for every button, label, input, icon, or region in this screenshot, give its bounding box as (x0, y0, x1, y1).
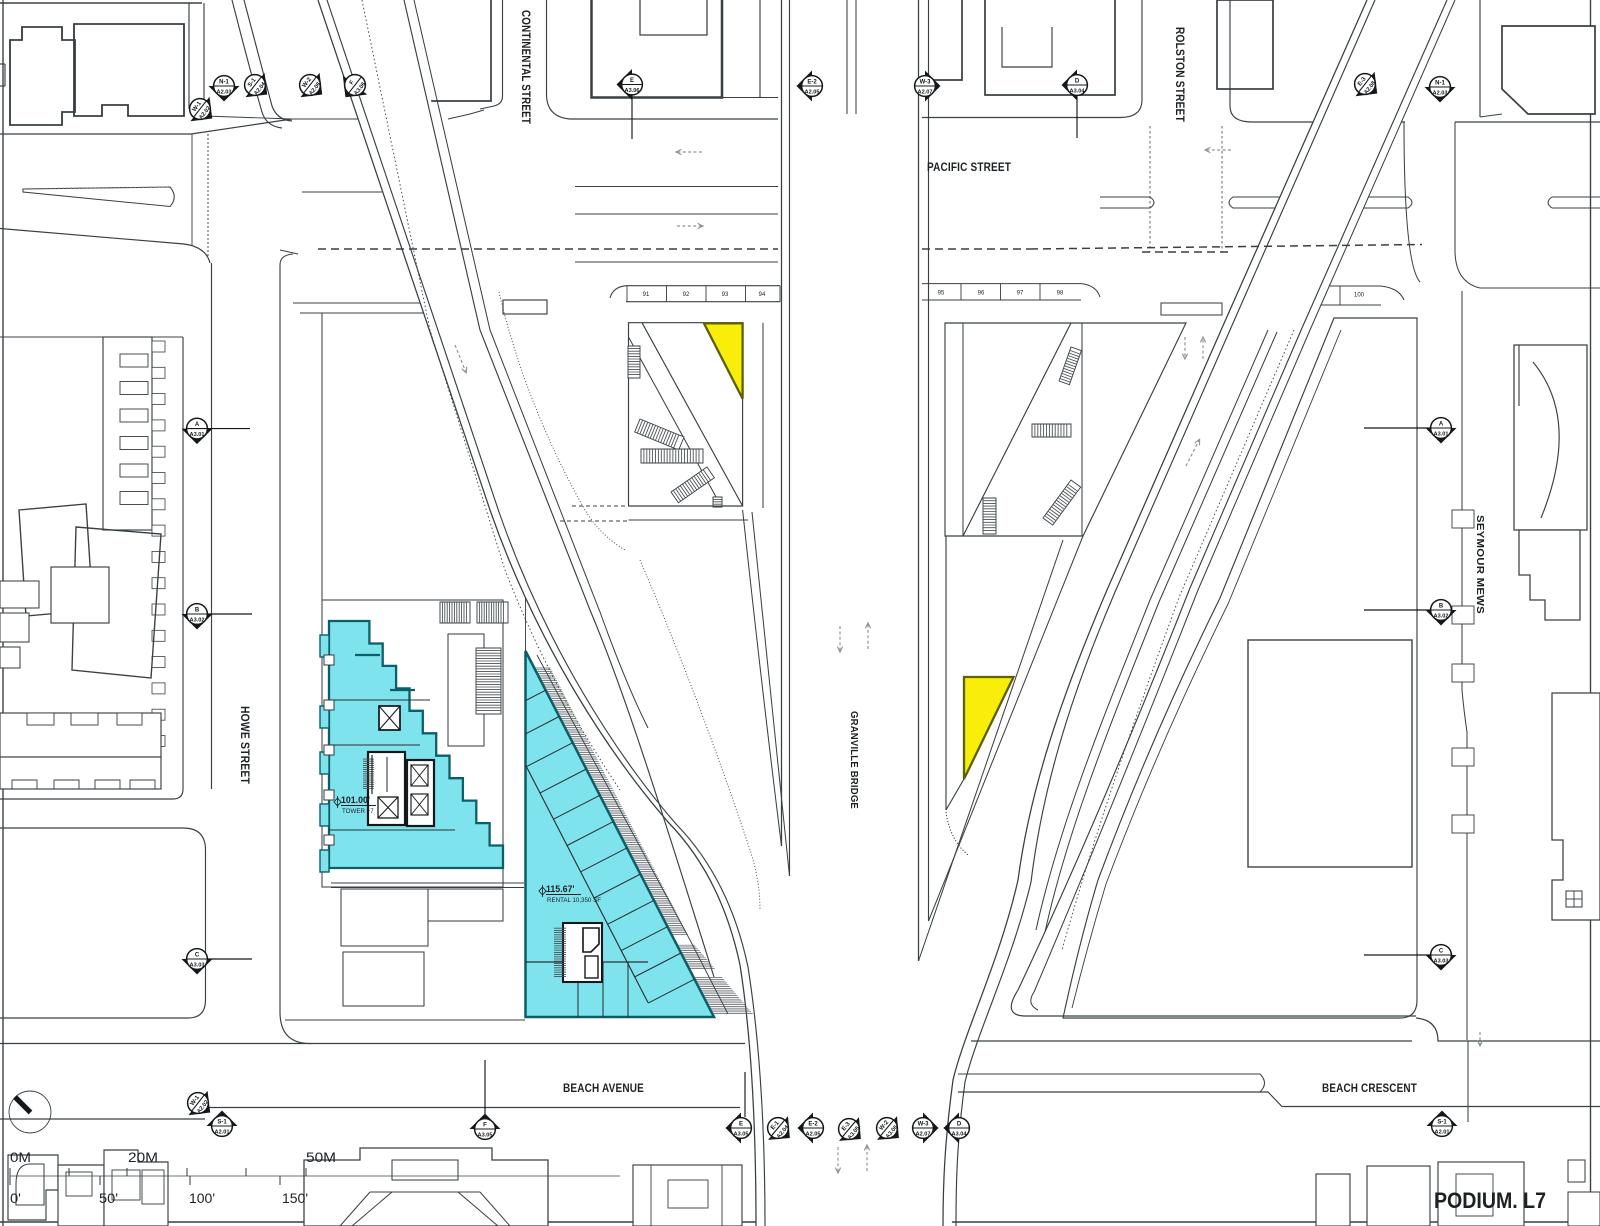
svg-text:E: E (739, 1122, 743, 1128)
svg-text:A3.04: A3.04 (1070, 89, 1086, 95)
svg-text:W-3: W-3 (918, 1122, 930, 1128)
svg-text:D: D (957, 1122, 962, 1128)
svg-text:A2.07: A2.07 (916, 1132, 931, 1138)
svg-text:N-1: N-1 (219, 80, 229, 86)
svg-text:0': 0' (10, 1191, 21, 1206)
svg-text:E: E (630, 78, 634, 84)
svg-text:A3.06: A3.06 (625, 88, 640, 94)
svg-text:A3.02: A3.02 (1434, 614, 1449, 620)
svg-text:C: C (195, 953, 200, 959)
svg-text:PACIFIC STREET: PACIFIC STREET (927, 162, 1011, 174)
svg-text:S-1: S-1 (217, 1120, 227, 1126)
svg-text:A2.07: A2.07 (918, 90, 933, 96)
svg-text:GRANVILLE BRIDGE: GRANVILLE BRIDGE (848, 711, 860, 809)
svg-text:A3.01: A3.01 (1434, 432, 1449, 438)
svg-text:CONTINENTAL STREET: CONTINENTAL STREET (519, 10, 531, 124)
svg-text:A2.01: A2.01 (215, 1130, 230, 1136)
svg-text:BEACH CRESCENT: BEACH CRESCENT (1322, 1083, 1417, 1095)
svg-text:W-3: W-3 (920, 80, 932, 86)
svg-text:B: B (1439, 604, 1444, 610)
svg-text:RENTAL 10,350 SF: RENTAL 10,350 SF (547, 897, 601, 904)
svg-text:95: 95 (938, 291, 945, 297)
svg-text:A2.03: A2.03 (217, 90, 232, 96)
svg-text:150': 150' (282, 1191, 308, 1206)
svg-text:ROLSTON STREET: ROLSTON STREET (1173, 27, 1185, 122)
svg-text:100: 100 (1354, 293, 1365, 299)
svg-text:TOWER +7: TOWER +7 (342, 808, 374, 815)
svg-text:101.00': 101.00' (341, 795, 370, 805)
svg-text:100': 100' (189, 1191, 215, 1206)
svg-text:F: F (483, 1123, 487, 1129)
svg-text:50M: 50M (306, 1150, 336, 1165)
svg-text:E-2: E-2 (808, 1122, 818, 1128)
svg-text:N-1: N-1 (1435, 81, 1445, 87)
svg-text:A3.01: A3.01 (190, 432, 205, 438)
svg-text:50': 50' (99, 1191, 118, 1206)
svg-text:96: 96 (978, 291, 985, 297)
svg-text:93: 93 (722, 292, 729, 298)
svg-text:A2.03: A2.03 (1433, 91, 1448, 97)
svg-text:A3.04: A3.04 (952, 1132, 968, 1138)
svg-text:BEACH AVENUE: BEACH AVENUE (563, 1083, 644, 1095)
svg-text:92: 92 (683, 292, 690, 298)
svg-text:A: A (1439, 422, 1444, 428)
svg-text:C: C (1439, 949, 1444, 955)
svg-text:94: 94 (759, 292, 766, 298)
svg-text:D: D (1075, 79, 1080, 85)
svg-text:97: 97 (1017, 291, 1024, 297)
svg-text:A3.03: A3.03 (190, 963, 205, 969)
svg-text:A3.05: A3.05 (478, 1133, 493, 1139)
svg-text:B: B (195, 608, 200, 614)
svg-text:A2.05: A2.05 (806, 1132, 821, 1138)
svg-text:A3.02: A3.02 (190, 618, 205, 624)
svg-text:E-2: E-2 (807, 80, 817, 86)
svg-text:A3.05: A3.05 (734, 1132, 749, 1138)
svg-text:A2.05: A2.05 (805, 90, 820, 96)
svg-text:115.67': 115.67' (546, 884, 575, 894)
svg-text:SEYMOUR MEWS: SEYMOUR MEWS (1474, 515, 1486, 614)
svg-text:S-1: S-1 (1437, 1120, 1447, 1126)
svg-text:HOWE STREET: HOWE STREET (238, 706, 250, 784)
svg-text:20M: 20M (128, 1150, 158, 1165)
svg-text:A: A (195, 422, 200, 428)
svg-text:A3.03: A3.03 (1434, 959, 1449, 965)
svg-text:98: 98 (1057, 291, 1064, 297)
svg-text:0M: 0M (10, 1150, 31, 1165)
svg-text:91: 91 (643, 292, 650, 298)
svg-text:PODIUM. L7: PODIUM. L7 (1434, 1188, 1546, 1213)
svg-text:A2.01: A2.01 (1435, 1130, 1450, 1136)
